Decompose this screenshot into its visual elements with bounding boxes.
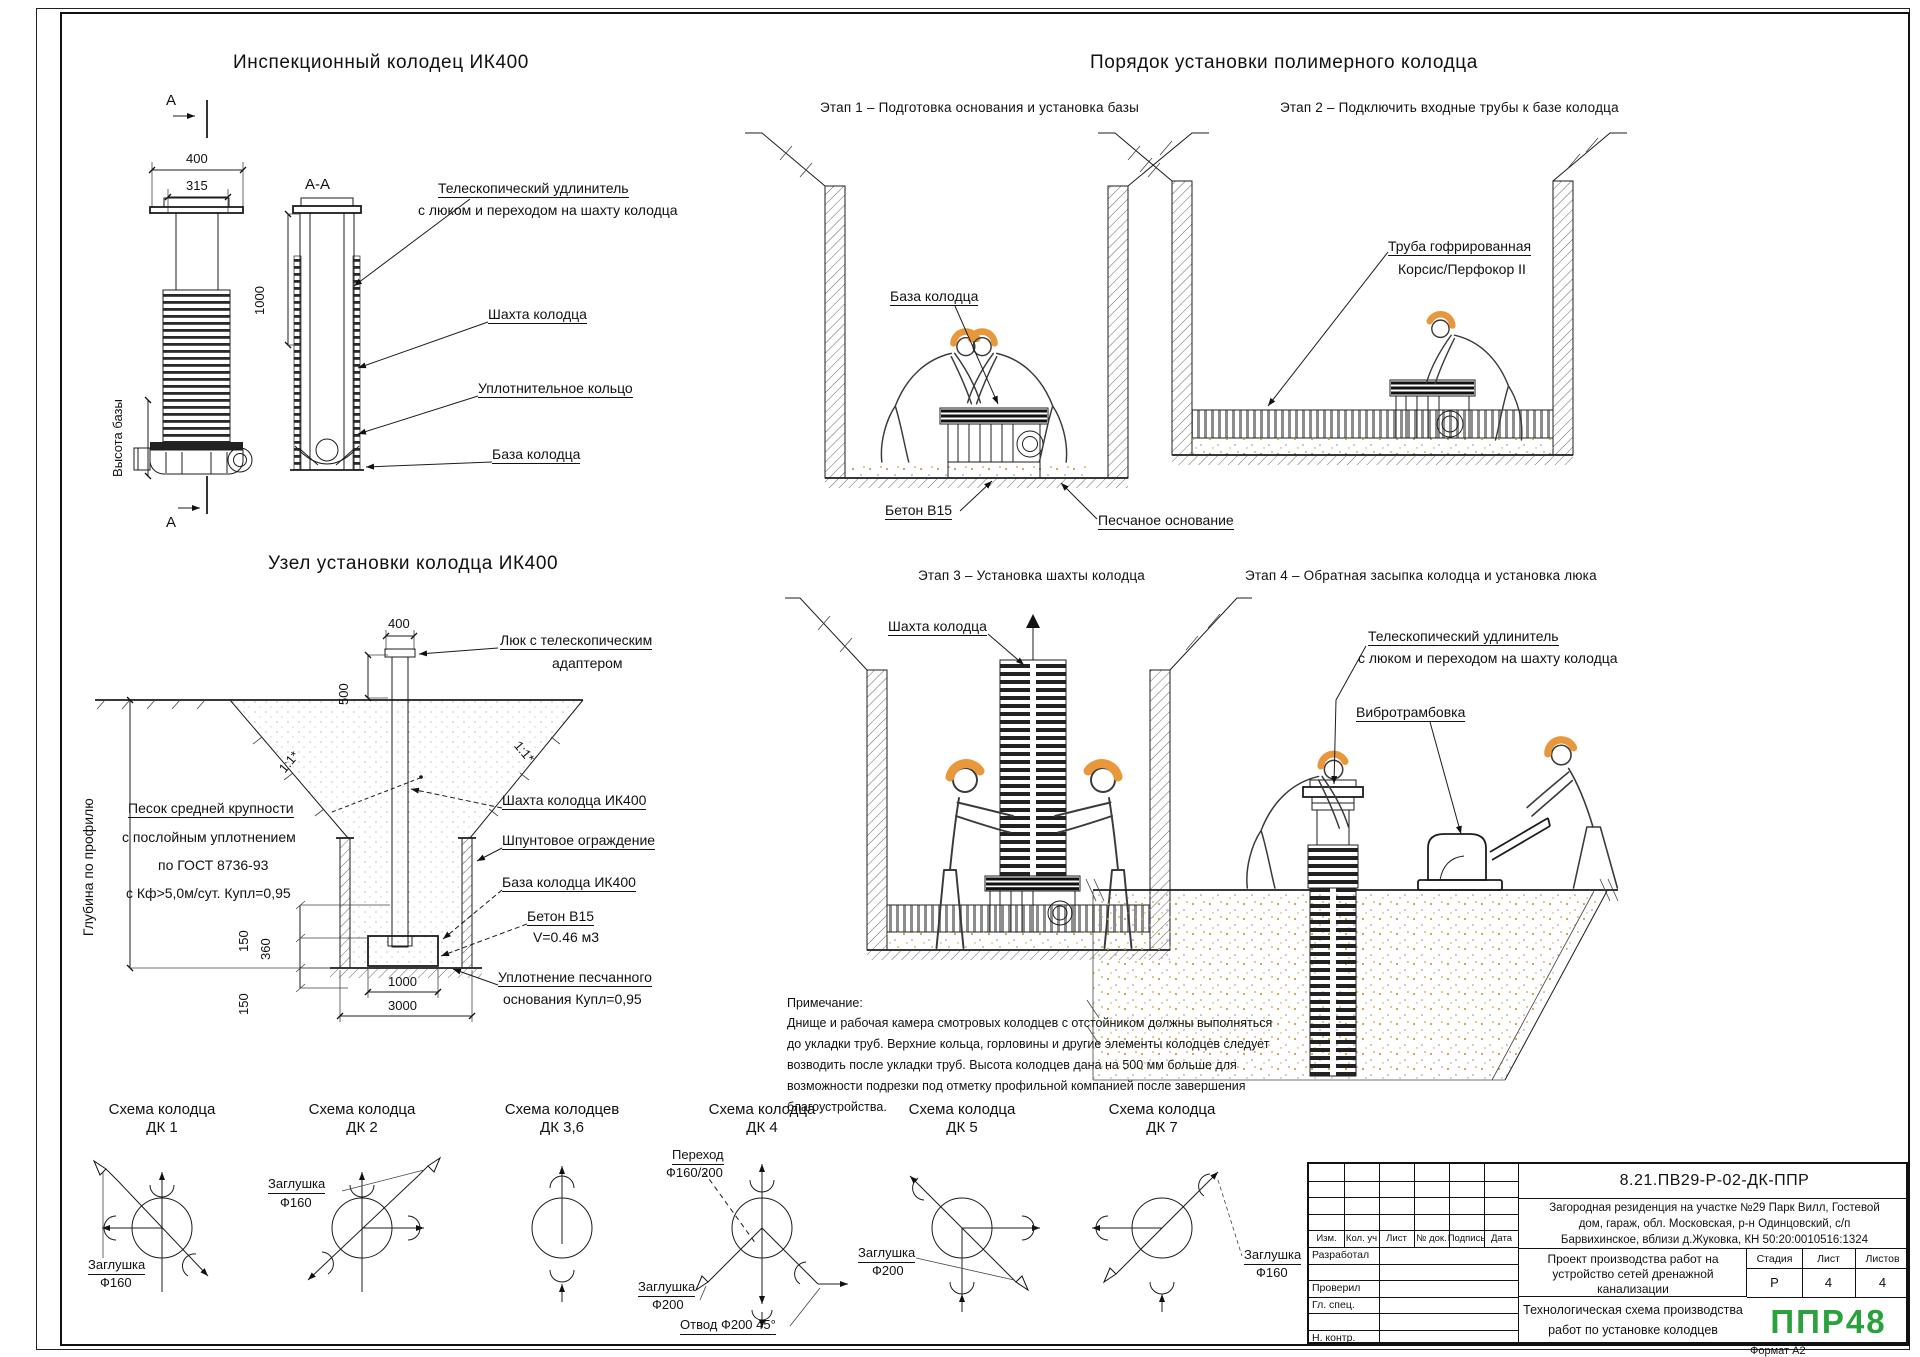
tb-stage-value: Р [1747, 1268, 1802, 1297]
sch5-title-1: Схема колодца [882, 1101, 1042, 1118]
stage3-label-shaft: Шахта колодца [888, 618, 987, 636]
sec2-label-seal-1: Уплотнение песчанного [498, 969, 652, 987]
sec2-sand-line-3: по ГОСТ 8736-93 [158, 857, 268, 873]
sch4-label-plug-d: Ф200 [652, 1298, 684, 1313]
sec2-label-base: База колодца ИК400 [502, 874, 636, 892]
sec1-label-telescopic-1: Телескопический удлинитель [438, 180, 629, 198]
sch4-title-1: Схема колодца [682, 1101, 842, 1118]
sec1-section-view-label: А-А [305, 176, 330, 193]
sch1-label-plug: Заглушка [88, 1258, 145, 1275]
sch1-label-plug-d: Ф160 [100, 1276, 132, 1291]
tb-row-glspec: Гл. спец. [1312, 1299, 1379, 1313]
sec1-title: Инспекционный колодец ИК400 [233, 52, 529, 74]
sec2-dim-3000: 3000 [388, 999, 417, 1014]
sec1-base-height-label: Высота базы [111, 399, 126, 477]
stage4-label-tel-1: Телескопический удлинитель [1368, 628, 1559, 646]
sch2-label-plug: Заглушка [268, 1177, 325, 1194]
sch6-title-2: ДК 7 [1082, 1119, 1242, 1136]
sch7-label-plug-d: Ф160 [1256, 1266, 1288, 1281]
format-label: Формат А2 [1750, 1345, 1806, 1357]
sch6-title-1: Схема колодца [1082, 1101, 1242, 1118]
sch5-label-plug: Заглушка [858, 1246, 915, 1263]
tb-project-line-2: дом, гараж, обл. Московская, р-н Одинцов… [1521, 1216, 1908, 1232]
sec1-label-telescopic-2: с люком и переходом на шахту колодца [418, 202, 678, 218]
stage4-label-tel-2: с люком и переходом на шахту колодца [1358, 650, 1618, 666]
sch5-label-plug-d: Ф200 [872, 1264, 904, 1279]
stage4-title: Этап 4 – Обратная засыпка колодца и уста… [1245, 568, 1597, 584]
sec2-sand-line-1: Песок средней крупности [128, 800, 294, 818]
stage2-title: Этап 2 – Подключить входные трубы к базе… [1280, 100, 1619, 116]
sec2-label-shaft: Шахта колодца ИК400 [502, 792, 646, 810]
sec2-label-seal-2: основания Купл=0,95 [503, 991, 642, 1007]
sch3-title-2: ДК 3,6 [482, 1119, 642, 1136]
sch2-title-1: Схема колодца [282, 1101, 442, 1118]
sec1-dim-315: 315 [186, 179, 208, 194]
tb-row-empty-1 [1312, 1266, 1379, 1280]
sch7-label-plug: Заглушка [1244, 1248, 1301, 1265]
sch4-title-2: ДК 4 [682, 1119, 842, 1136]
sec1-section-mark-top: А [166, 92, 176, 109]
sch3-title-1: Схема колодцев [482, 1101, 642, 1118]
sec1-dim-400: 400 [186, 152, 208, 167]
stage2-label-pipe-2: Корсис/Перфокор II [1398, 261, 1526, 277]
tb-sheets-value: 4 [1855, 1268, 1910, 1297]
sec1-label-oring: Уплотнительное кольцо [478, 380, 633, 398]
tb-sheet-title-2: работ по установке колодцев [1521, 1319, 1745, 1341]
stage2-label-pipe-1: Труба гофрированная [1388, 238, 1531, 256]
note-line-1: Днище и рабочая камера смотровых колодце… [787, 1016, 1272, 1030]
sec2-label-hatch-1: Люк с телескопическим [500, 632, 652, 650]
tb-project-line-1: Загородная резиденция на участке №29 Пар… [1521, 1200, 1908, 1216]
tb-col-data: Дата [1484, 1230, 1519, 1247]
sch4-label-reducer-d: Ф160/200 [666, 1166, 723, 1181]
stage1-title: Этап 1 – Подготовка основания и установк… [820, 100, 1139, 116]
stage3-title: Этап 3 – Установка шахты колодца [918, 568, 1145, 584]
note-title: Примечание: [787, 996, 863, 1010]
stage1-label-sand: Песчаное основание [1098, 512, 1234, 530]
stage1-label-base: База колодца [890, 288, 978, 306]
sec2-dim-400: 400 [388, 617, 410, 632]
sec2-dim-150a: 150 [237, 930, 252, 952]
tb-work-line-2: устройство сетей дренажной [1521, 1266, 1745, 1281]
tb-sheet-value: 4 [1802, 1268, 1855, 1297]
sec2-depth-label: Глубина по профилю [80, 798, 96, 936]
tb-row-nkontr: Н. контр. [1312, 1332, 1379, 1346]
sch4-label-bend: Отвод Ф200 45° [680, 1318, 776, 1335]
tb-sheet-title-1: Технологическая схема производства [1521, 1299, 1745, 1321]
tb-work-line-1: Проект производства работ на [1521, 1251, 1745, 1266]
sec1-section-mark-bottom: А [166, 514, 176, 531]
sch2-label-plug-d: Ф160 [280, 1196, 312, 1211]
stage4-label-vibro: Вибротрамбовка [1356, 704, 1465, 722]
tb-col-list: Лист [1379, 1230, 1414, 1247]
tb-col-podpis: Подпись [1449, 1230, 1484, 1247]
tb-col-kol: Кол. уч [1344, 1230, 1379, 1247]
tb-project-line-3: Барвихинское, вблизи д.Жуковка, КН 50:20… [1521, 1232, 1908, 1248]
sec2-label-concrete-2: V=0.46 м3 [533, 929, 599, 945]
tb-col-ndok: № док. [1414, 1230, 1449, 1247]
sec3-title: Порядок установки полимерного колодца [1090, 52, 1478, 74]
sec2-label-concrete-1: Бетон В15 [527, 908, 594, 926]
sec2-dim-150b: 150 [237, 993, 252, 1015]
technical-drawing-canvas [0, 0, 1920, 1357]
sch4-label-reducer: Переход [672, 1148, 724, 1165]
company-logo: ППР48 [1747, 1297, 1910, 1346]
sec2-dim-1000: 1000 [388, 975, 417, 990]
sec1-label-base: База колодца [492, 446, 580, 464]
sch1-title-2: ДК 1 [82, 1119, 242, 1136]
sec1-dim-1000: 1000 [253, 286, 268, 315]
sec2-label-hatch-2: адаптером [552, 655, 623, 671]
tb-stage-header: Стадия [1747, 1249, 1802, 1268]
note-line-4: возможности подрезки под отметку профиль… [787, 1079, 1246, 1093]
sec1-label-shaft: Шахта колодца [488, 306, 587, 324]
tb-sheets-header: Листов [1855, 1249, 1910, 1268]
tb-row-empty-2 [1312, 1315, 1379, 1329]
sec2-sand-line-4: с Кф>5,0м/сут. Купл=0,95 [126, 885, 291, 901]
tb-doc-number: 8.21.ПВ29-Р-02-ДК-ППР [1519, 1164, 1910, 1199]
title-block: Изм. Кол. уч Лист № док. Подпись Дата Ра… [1307, 1162, 1908, 1344]
tb-col-izm: Изм. [1309, 1230, 1344, 1247]
tb-row-razrabotal: Разработал [1312, 1249, 1379, 1263]
sec2-title: Узел установки колодца ИК400 [268, 553, 558, 575]
tb-row-proveril: Проверил [1312, 1282, 1379, 1296]
sec2-label-sheet-pile: Шпунтовое ограждение [502, 832, 655, 850]
stage1-drawing [745, 133, 1209, 519]
sch4-label-plug: Заглушка [638, 1280, 695, 1297]
sch1-title-1: Схема колодца [82, 1101, 242, 1118]
note-line-3: возводить после укладки труб. Высота кол… [787, 1058, 1237, 1072]
stage1-label-concrete: Бетон В15 [885, 502, 952, 520]
sch5-title-2: ДК 5 [882, 1119, 1042, 1136]
tb-sheet-header: Лист [1802, 1249, 1855, 1268]
sec2-dim-360: 360 [259, 938, 274, 960]
tb-work-line-3: канализации [1521, 1281, 1745, 1296]
sec2-dim-500: 500 [337, 683, 352, 705]
sec2-sand-line-2: с послойным уплотнением [122, 829, 296, 845]
sch2-title-2: ДК 2 [282, 1119, 442, 1136]
drawing-sheet: Инспекционный колодец ИК400 А А 400 315 … [0, 0, 1920, 1357]
note-line-2: до укладки труб. Верхние кольца, горлови… [787, 1037, 1269, 1051]
stage2-drawing [1098, 133, 1627, 465]
